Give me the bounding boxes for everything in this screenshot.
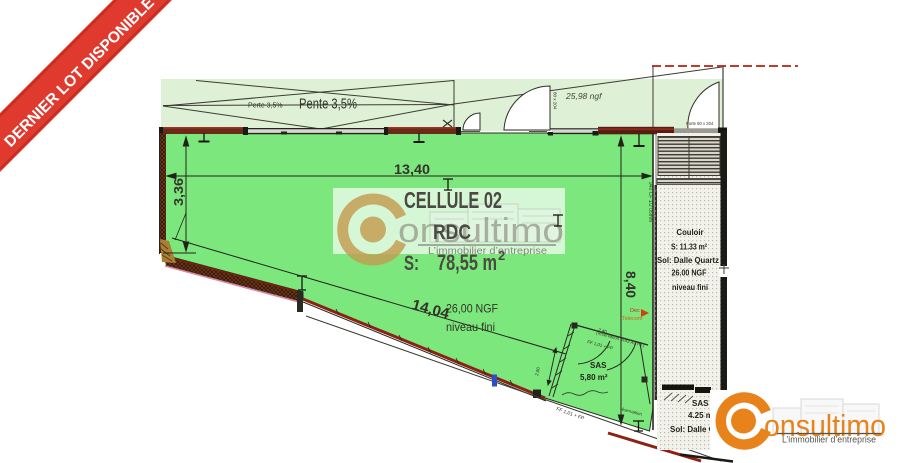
svg-text:3,36: 3,36	[172, 178, 186, 206]
svg-text:Dec: Dec	[630, 308, 640, 314]
svg-text:78,55 m: 78,55 m	[437, 250, 497, 275]
svg-text:5,80 m²: 5,80 m²	[580, 373, 608, 382]
svg-text:Couloir: Couloir	[677, 228, 704, 237]
svg-text:CELLULE 02: CELLULE 02	[404, 187, 502, 213]
svg-text:S:: S:	[404, 252, 419, 275]
svg-text:Pente 3,5%: Pente 3,5%	[299, 97, 357, 113]
svg-text:2: 2	[498, 248, 505, 263]
svg-text:SAS: SAS	[692, 399, 709, 408]
svg-text:Perte 3,5%: Perte 3,5%	[248, 103, 283, 110]
svg-text:26,00 NGF: 26,00 NGF	[446, 302, 498, 316]
svg-text:13,40: 13,40	[394, 161, 430, 177]
svg-text:940 CF 1/2 05mm: 940 CF 1/2 05mm	[647, 182, 653, 222]
svg-text:80 x 204: 80 x 204	[553, 92, 558, 110]
svg-text:8,40: 8,40	[623, 271, 638, 298]
svg-text:Porte 80 x 204: Porte 80 x 204	[686, 121, 714, 126]
svg-text:26.00 NGF: 26.00 NGF	[672, 269, 707, 278]
svg-text:25,98 ngf: 25,98 ngf	[565, 91, 603, 101]
svg-text:niveau fini: niveau fini	[672, 283, 708, 292]
svg-text:niveau fini: niveau fini	[446, 320, 495, 334]
svg-text:SAS: SAS	[590, 361, 607, 370]
svg-text:Sol: Dalle Q: Sol: Dalle Q	[670, 425, 715, 434]
svg-text:RDC: RDC	[433, 221, 471, 244]
svg-text:Telecom: Telecom	[622, 316, 643, 322]
svg-text:Sol: Dalle Quartz: Sol: Dalle Quartz	[657, 256, 719, 265]
svg-text:S: 11.33 m²: S: 11.33 m²	[671, 243, 707, 252]
svg-text:L’immobilier d’entreprise: L’immobilier d’entreprise	[782, 435, 876, 445]
